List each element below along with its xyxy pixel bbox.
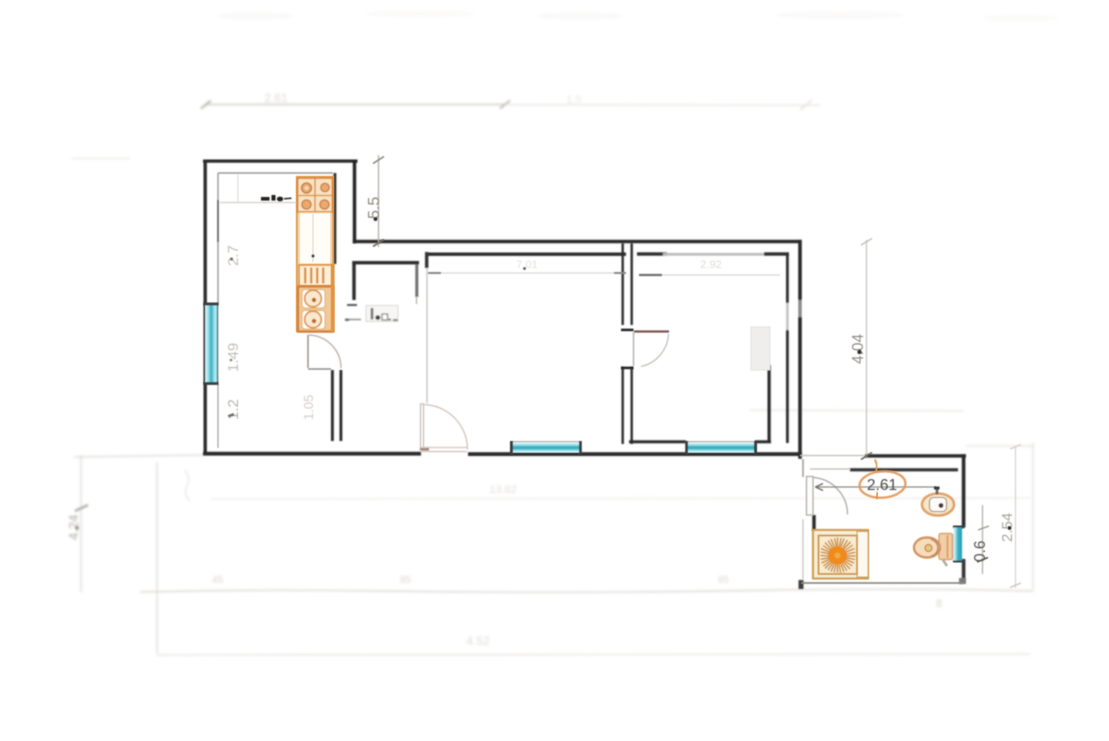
svg-text:45: 45: [212, 575, 224, 586]
svg-text:13.82: 13.82: [489, 484, 517, 496]
svg-text:5.5: 5.5: [366, 197, 383, 219]
svg-text:1.05: 1.05: [301, 395, 316, 420]
svg-text:2.92: 2.92: [700, 259, 721, 271]
svg-text:1.2: 1.2: [225, 399, 242, 420]
svg-text:4.24: 4.24: [66, 515, 81, 540]
svg-text:4.04: 4.04: [850, 333, 867, 364]
svg-text:2.61: 2.61: [264, 91, 288, 105]
svg-text:0.6: 0.6: [972, 540, 989, 562]
svg-text:2.54: 2.54: [999, 513, 1016, 542]
svg-text:2.61: 2.61: [867, 477, 897, 494]
svg-text:85: 85: [718, 575, 730, 586]
svg-text:1.5: 1.5: [566, 94, 581, 106]
svg-text:85: 85: [400, 575, 412, 586]
svg-text:2.7: 2.7: [225, 245, 242, 266]
svg-text:4.52: 4.52: [466, 634, 490, 648]
svg-text:8: 8: [936, 598, 942, 610]
svg-text:7.01: 7.01: [516, 259, 537, 271]
svg-text:1.49: 1.49: [225, 343, 242, 372]
